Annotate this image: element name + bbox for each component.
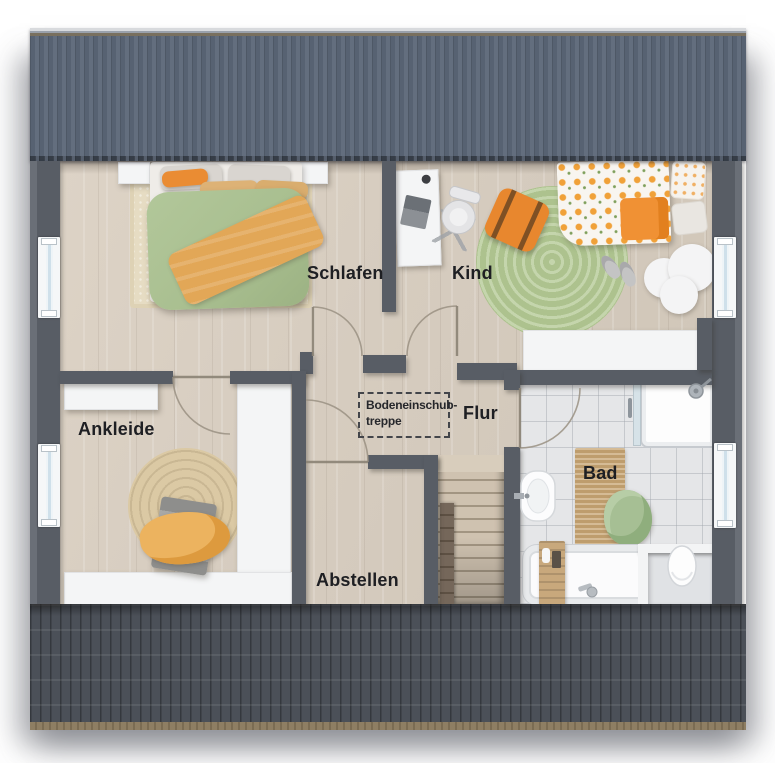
shower-glass-door bbox=[633, 378, 641, 446]
attic-hatch-label-line1: Bodeneinschub- bbox=[366, 398, 457, 412]
wardrobe-bottom bbox=[64, 572, 292, 606]
window-ankleide bbox=[38, 444, 60, 527]
window-schlafen bbox=[38, 237, 60, 318]
laptop bbox=[400, 195, 432, 230]
roof-gutter bbox=[30, 722, 746, 730]
cloud-rug bbox=[644, 238, 718, 314]
room-label-ankleide: Ankleide bbox=[78, 419, 155, 440]
room-label-abstellen: Abstellen bbox=[316, 570, 399, 591]
shower bbox=[640, 376, 716, 448]
stair-landing bbox=[438, 455, 504, 472]
window-glass bbox=[46, 244, 53, 311]
bottle bbox=[542, 548, 550, 563]
wall-right-step bbox=[697, 318, 712, 370]
attic-hatch-label-line2: treppe bbox=[366, 414, 401, 428]
wall-schlafen-kind bbox=[382, 161, 396, 312]
wall-hall-stub bbox=[363, 355, 406, 373]
kids-pillow-dotted bbox=[670, 160, 707, 200]
window-bad bbox=[714, 443, 736, 528]
roof-upper-slope bbox=[30, 28, 746, 161]
room-label-flur: Flur bbox=[463, 403, 498, 424]
nightstand-left bbox=[118, 162, 150, 184]
toilet-ledge bbox=[638, 544, 712, 553]
room-label-schlafen: Schlafen bbox=[307, 263, 384, 284]
window-glass bbox=[722, 244, 729, 311]
tub-partition bbox=[638, 544, 648, 604]
kids-cabinet bbox=[523, 330, 710, 372]
window-glass bbox=[46, 451, 53, 520]
kids-bed bbox=[557, 157, 712, 246]
kids-blanket-orange bbox=[620, 197, 669, 241]
roof-lower-slope bbox=[30, 604, 746, 730]
wall-stairs-left bbox=[424, 455, 438, 604]
wall-outer-left bbox=[30, 161, 60, 604]
wall-bad-door-stub bbox=[504, 370, 520, 390]
room-label-bad: Bad bbox=[583, 463, 618, 484]
stair-railing bbox=[440, 503, 454, 604]
attic-hatch-outline: Bodeneinschub- treppe bbox=[358, 392, 450, 438]
wardrobe-right bbox=[237, 376, 291, 576]
wall-ankleide-top-left bbox=[60, 371, 173, 384]
room-label-kind: Kind bbox=[452, 263, 493, 284]
toilet-niche-floor bbox=[648, 553, 712, 604]
wall-ankleide-hall bbox=[292, 371, 306, 604]
towel bbox=[604, 490, 652, 546]
staircase bbox=[438, 455, 504, 604]
book bbox=[552, 551, 561, 568]
shower-door-handle bbox=[628, 398, 632, 418]
desk-lamp bbox=[421, 175, 430, 184]
wall-stairs-right bbox=[504, 447, 520, 604]
desk bbox=[394, 169, 441, 266]
floorplan-upper-floor: Schlafen Kind Ankleide Flur Abstellen Ba… bbox=[0, 0, 775, 763]
kids-pillow-gray bbox=[671, 200, 709, 236]
bath-caddy bbox=[539, 541, 565, 606]
window-kind bbox=[714, 237, 736, 318]
wall-outer-right bbox=[712, 161, 742, 604]
window-glass bbox=[722, 450, 729, 521]
wall-bad-top bbox=[517, 370, 712, 385]
